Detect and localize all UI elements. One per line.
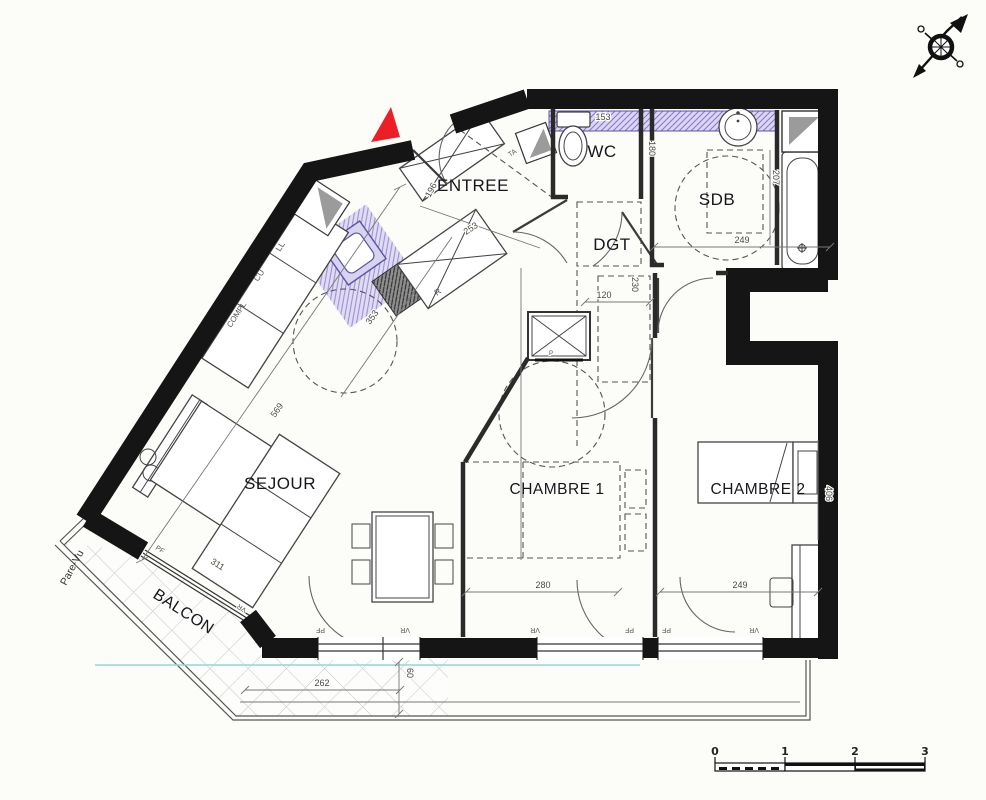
dim-wc-depth: 180 [647, 141, 657, 156]
label-vr-window: VR [400, 626, 410, 633]
sdb-fixtures [707, 108, 823, 270]
scale-tick-2: 2 [851, 745, 859, 758]
compass-rose-icon [913, 14, 968, 78]
dim-dgt-width: 120 [596, 290, 611, 300]
dim-sdb-width: 249 [734, 235, 749, 245]
room-label-sejour: SEJOUR [244, 474, 316, 493]
floor-plan-page: 0 1 2 3 ENTREE WC SDB DGT SEJOUR CHAMBRE… [0, 0, 986, 800]
desk-chair [770, 578, 793, 607]
room-label-chambre2: CHAMBRE 2 [711, 481, 806, 498]
bottom-windows [318, 637, 763, 660]
chambre1-furniture [463, 462, 646, 558]
dim-balcony-width: 262 [314, 678, 329, 688]
label-pare-vu: Pare-Vu [58, 548, 87, 587]
dim-wc-width: 153 [595, 112, 610, 122]
room-label-sdb: SDB [699, 190, 735, 209]
chair [352, 524, 370, 548]
room-label-chambre1: CHAMBRE 1 [510, 481, 605, 498]
dim-ch2-width: 249 [732, 580, 747, 590]
label-ta: TA [507, 148, 518, 159]
label-pf-window: PF [316, 626, 325, 633]
room-label-wc: WC [587, 142, 616, 161]
dim-balcony-depth: 60 [405, 668, 415, 678]
dim-dgt-depth: 230 [630, 277, 640, 292]
dim-ch2-depth: 406 [824, 486, 834, 501]
scale-tick-1: 1 [781, 745, 789, 758]
sink-icon [719, 108, 757, 146]
dim-sdb-depth: 207 [771, 170, 781, 185]
nightstand-dashed [625, 514, 646, 551]
label-vr-window: VR [749, 626, 759, 633]
room-label-entree: ENTREE [437, 176, 509, 195]
dining-table [352, 512, 453, 602]
scale-bar: 0 1 2 3 [711, 745, 929, 771]
wc-door-leaf [513, 200, 567, 232]
chair [435, 524, 453, 548]
bathtub-icon [782, 152, 823, 270]
sejour-furniture [133, 395, 453, 608]
toilet-icon [557, 112, 590, 166]
label-vr-window: VR [530, 626, 540, 633]
north-triangle-icon [371, 107, 400, 142]
bed-dashed [463, 462, 620, 558]
closet [528, 312, 590, 360]
scale-tick-3: 3 [921, 745, 929, 758]
scale-tick-0: 0 [711, 745, 719, 758]
label-pf-window: PF [662, 626, 671, 633]
label-pf-window: PF [625, 626, 634, 633]
chair [435, 560, 453, 584]
chambre2-furniture [698, 442, 825, 640]
duct-notch-wall [738, 280, 838, 353]
room-label-dgt: DGT [593, 235, 630, 254]
label-pf-bay: PF [154, 545, 165, 556]
label-placard: P [549, 351, 553, 357]
floor-plan-drawing: 0 1 2 3 ENTREE WC SDB DGT SEJOUR CHAMBRE… [0, 0, 986, 800]
chambre2-window-door-arc [680, 577, 735, 632]
chair [352, 560, 370, 584]
nightstand-dashed [625, 470, 646, 508]
dim-sejour-diag: 569 [268, 401, 285, 419]
dim-ch1-width: 280 [535, 580, 550, 590]
